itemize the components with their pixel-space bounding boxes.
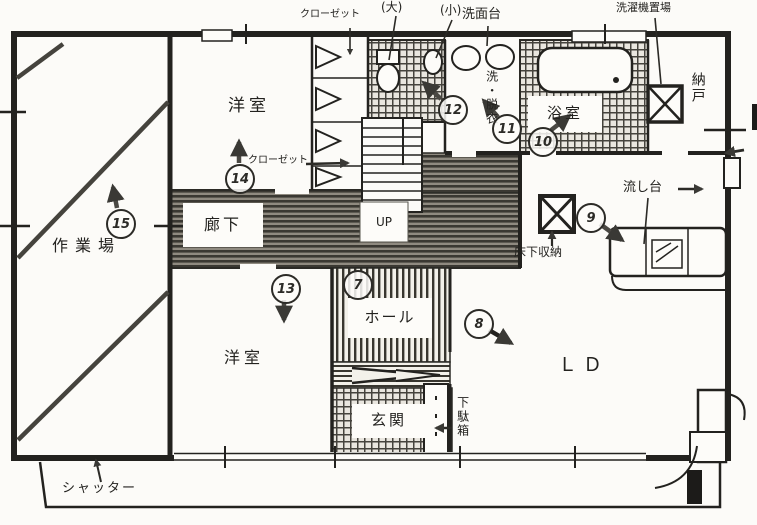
photo-marker-7: 7 <box>343 270 373 300</box>
room-corridor-label: 廊下 <box>183 203 263 247</box>
stairs-up-label: UP <box>360 202 408 242</box>
washstand-label: 洗面台 <box>462 8 501 22</box>
toilet-large-icon <box>377 50 399 92</box>
room-washroom-label: 洗・脱衣 <box>485 70 498 160</box>
floorplan-page: クローゼット (大) (小) 洗面台 洗濯機置場 洋室 洗・脱衣 浴室 納戸 ク… <box>0 0 757 525</box>
room-workshop-label: 作業場 <box>52 238 121 255</box>
washstand-sinks-icon <box>452 45 514 70</box>
room-entrance-label: 玄関 <box>352 404 426 438</box>
shutter-label: シャッター <box>62 482 137 496</box>
washing-machine-label: 洗濯機置場 <box>616 2 671 14</box>
kitchen-sink-label: 流し台 <box>623 181 662 195</box>
photo-marker-12: 12 <box>438 95 468 125</box>
photo-marker-14: 14 <box>225 164 255 194</box>
closet-folding-doors <box>312 46 368 186</box>
photo-marker-9: 9 <box>576 203 606 233</box>
photo-marker-13: 13 <box>271 274 301 304</box>
underfloor-storage-box <box>540 196 574 232</box>
closet-mid-label: クローゼット <box>248 156 308 167</box>
toilet-large-label: (大) <box>381 1 402 14</box>
floorplan-drawing <box>0 0 757 525</box>
photo-marker-10: 10 <box>528 127 558 157</box>
room-hall-label: ホール <box>348 298 432 338</box>
shoe-cabinet-label: 下駄箱 <box>456 396 469 452</box>
room-western-top-label: 洋室 <box>228 98 270 116</box>
room-ld-label: ＬＤ <box>558 356 608 376</box>
stairs <box>362 118 422 212</box>
urinal-icon <box>424 50 442 74</box>
washing-machine-box <box>648 86 682 122</box>
closet-top-label: クローゼット <box>300 10 360 21</box>
shoe-cabinet-box <box>424 384 448 458</box>
kitchen-counter <box>610 228 726 290</box>
toilet-small-label: (小) <box>440 4 461 17</box>
photo-marker-15: 15 <box>106 209 136 239</box>
room-storage-label: 納戸 <box>690 72 705 132</box>
underfloor-storage-label: 床下収納 <box>514 246 562 259</box>
photo-marker-8: 8 <box>464 309 494 339</box>
room-western-bottom-label: 洋室 <box>224 350 264 367</box>
photo-marker-11: 11 <box>492 114 522 144</box>
